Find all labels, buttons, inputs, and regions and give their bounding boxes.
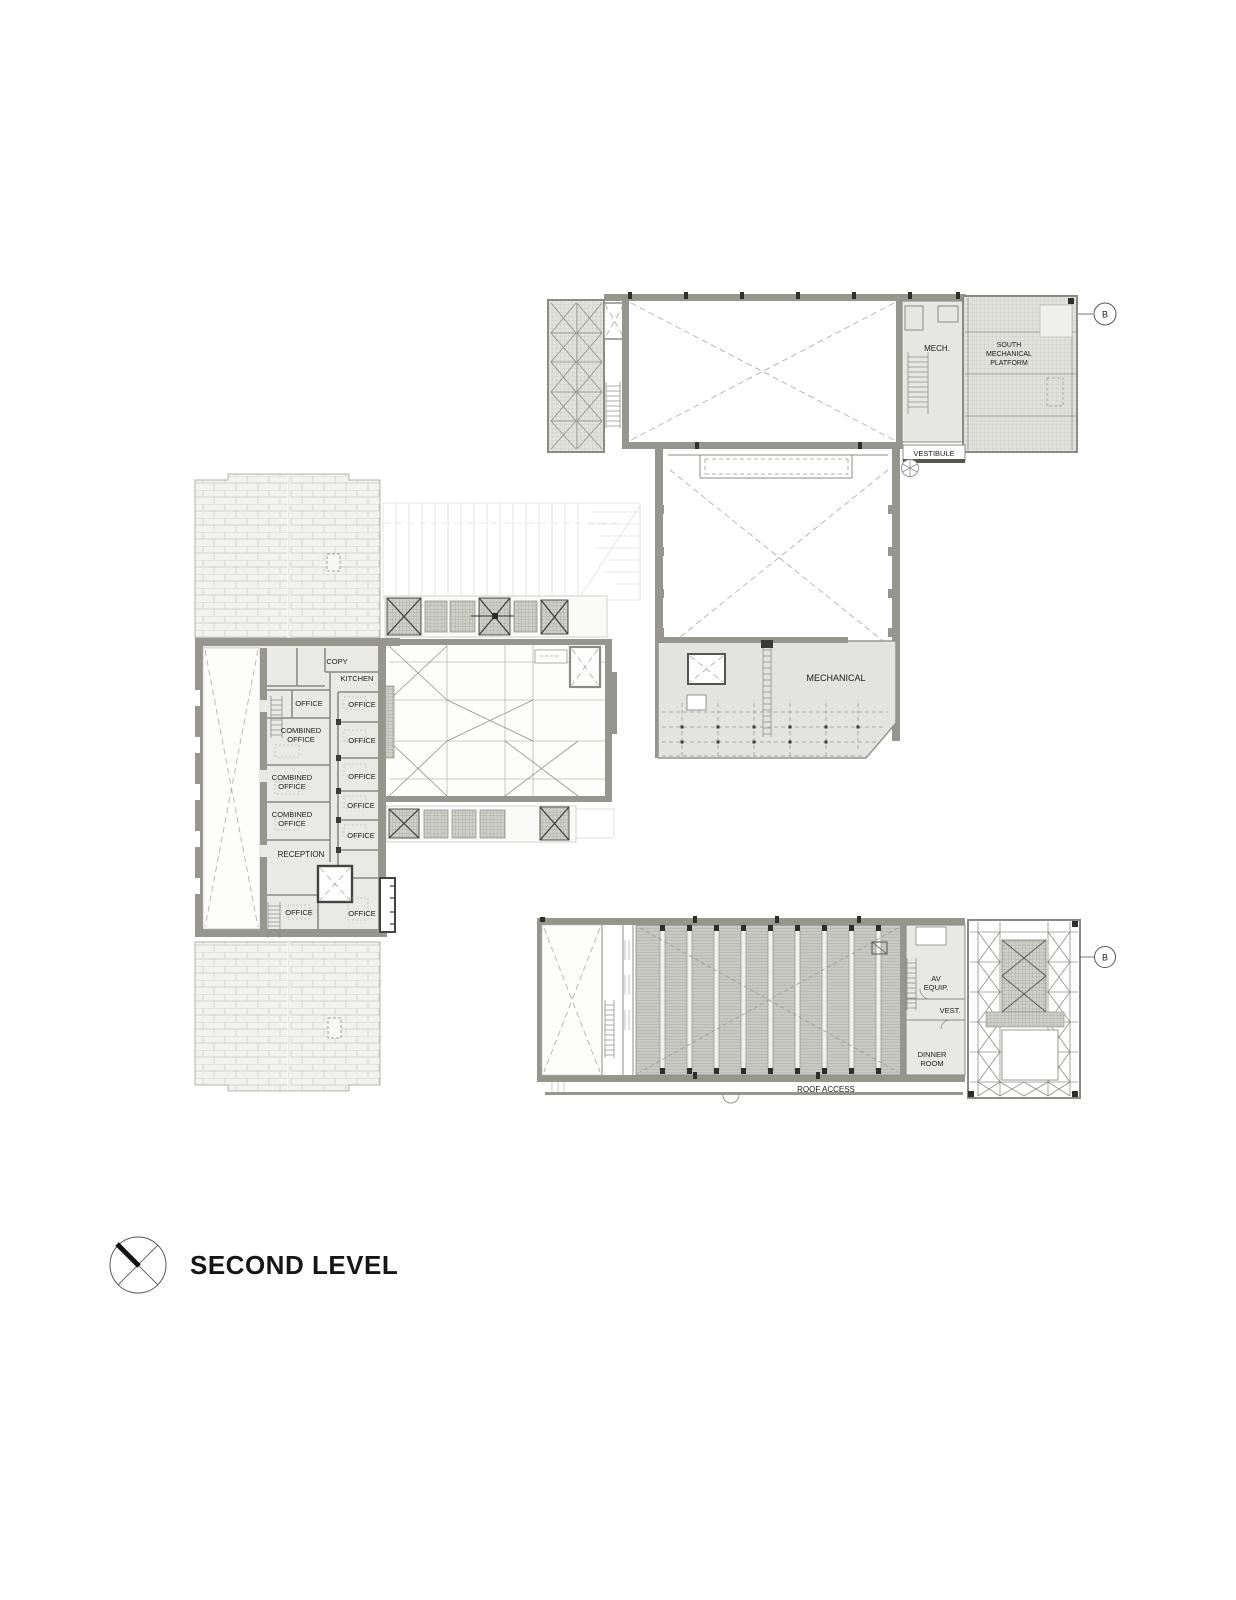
office-label: OFFICE <box>347 831 375 840</box>
av-equip-label: EQUIP. <box>924 983 948 992</box>
roof-faint <box>383 503 640 600</box>
office-label: OFFICE <box>295 699 323 708</box>
south-platform-label-3: PLATFORM <box>990 360 1028 367</box>
roof-access-label: ROOF ACCESS <box>797 1085 855 1094</box>
office-label: OFFICE <box>348 700 376 709</box>
office-floor: COPY KITCHEN OFFICE OFFICE OFFICE OFFICE… <box>195 638 400 938</box>
spiral-stair <box>902 460 919 477</box>
combined-office-label: COMBINED <box>272 810 313 819</box>
vest-label: VEST. <box>940 1006 961 1015</box>
skylight-band-bottom <box>386 806 614 842</box>
office-label: OFFICE <box>348 909 376 918</box>
svg-text:B: B <box>1102 953 1108 963</box>
floor-plan-sheet: MECH. SOUTH MECHANICAL PLATFORM VESTIBUL… <box>0 0 1236 1600</box>
office-label: OFFICE <box>348 736 376 745</box>
section-marker-b-bottom: B <box>1080 947 1116 968</box>
title-block: SECOND LEVEL <box>110 1237 398 1293</box>
combined-office-label: COMBINED <box>272 773 313 782</box>
section-marker-b-top: B <box>1078 303 1116 325</box>
roof-framing <box>383 639 617 802</box>
dinner-room-label: ROOM <box>920 1059 943 1068</box>
north-hall <box>629 301 896 442</box>
north-building: MECH. SOUTH MECHANICAL PLATFORM VESTIBUL… <box>548 292 1116 758</box>
av-equip-label: AV <box>931 974 940 983</box>
dinner-room-label: DINNER <box>918 1050 947 1059</box>
south-truss-platform <box>968 920 1080 1098</box>
second-level-plan: MECH. SOUTH MECHANICAL PLATFORM VESTIBUL… <box>0 0 1236 1600</box>
combined-office-label: OFFICE <box>278 782 306 791</box>
roof-access-corridor: ROOF ACCESS <box>545 1082 963 1103</box>
south-open-bay <box>542 925 602 1075</box>
south-building: AV EQUIP. VEST. DINNER ROOM ROOF ACCESS <box>537 916 1116 1103</box>
south-platform-label-1: SOUTH <box>997 342 1022 349</box>
office-label: OFFICE <box>348 772 376 781</box>
combined-office-label: OFFICE <box>287 735 315 744</box>
copy-label: COPY <box>326 657 347 666</box>
office-label: OFFICE <box>347 801 375 810</box>
sheet-title: SECOND LEVEL <box>190 1250 398 1280</box>
svg-text:B: B <box>1102 310 1108 320</box>
south-stair <box>605 1000 614 1058</box>
combined-office-label: COMBINED <box>281 726 322 735</box>
skylight-band-top <box>385 596 607 637</box>
office-label: OFFICE <box>285 908 313 917</box>
south-platform-label-2: MECHANICAL <box>986 351 1032 358</box>
vestibule-label: VESTIBULE <box>913 449 954 458</box>
north-platform-hatch <box>548 300 604 452</box>
mech-label: MECH. <box>924 344 950 353</box>
combined-office-label: OFFICE <box>278 819 306 828</box>
kitchen-label: KITCHEN <box>341 674 374 683</box>
north-arrow-icon <box>110 1237 166 1293</box>
mechanical-label: MECHANICAL <box>806 673 865 683</box>
reception-label: RECEPTION <box>278 850 325 859</box>
stair <box>606 382 620 428</box>
